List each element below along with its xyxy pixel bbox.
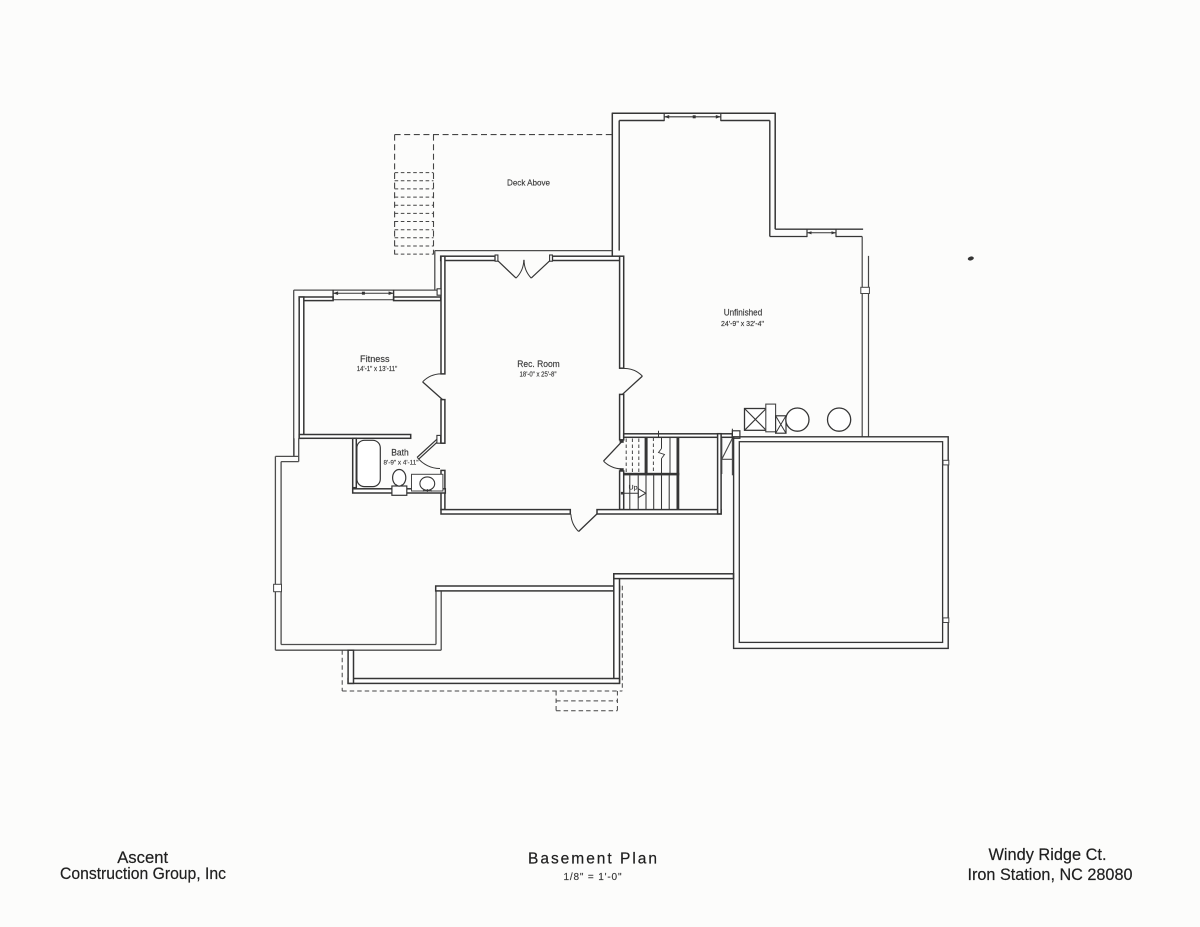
svg-text:Fitness: Fitness (360, 354, 390, 365)
svg-text:8'-9" x 4'-11": 8'-9" x 4'-11" (384, 460, 420, 467)
svg-text:Windy Ridge Ct.: Windy Ridge Ct. (989, 845, 1107, 864)
svg-text:Unfinished: Unfinished (724, 308, 763, 318)
svg-text:Iron Station, NC 28080: Iron Station, NC 28080 (968, 865, 1133, 884)
svg-text:Bath: Bath (391, 448, 409, 458)
svg-text:1/8" = 1'-0": 1/8" = 1'-0" (564, 872, 622, 883)
svg-text:14'-1" x 13'-11": 14'-1" x 13'-11" (357, 366, 398, 373)
svg-text:Up: Up (629, 485, 638, 492)
svg-text:18'-0" x 25'-8": 18'-0" x 25'-8" (520, 371, 557, 378)
svg-text:Basement Plan: Basement Plan (528, 851, 657, 868)
svg-text:Construction Group, Inc: Construction Group, Inc (60, 864, 226, 883)
svg-text:Rec. Room: Rec. Room (517, 359, 560, 370)
svg-text:Deck Above: Deck Above (507, 178, 550, 188)
svg-text:24'-9" x 32'-4": 24'-9" x 32'-4" (721, 321, 765, 328)
